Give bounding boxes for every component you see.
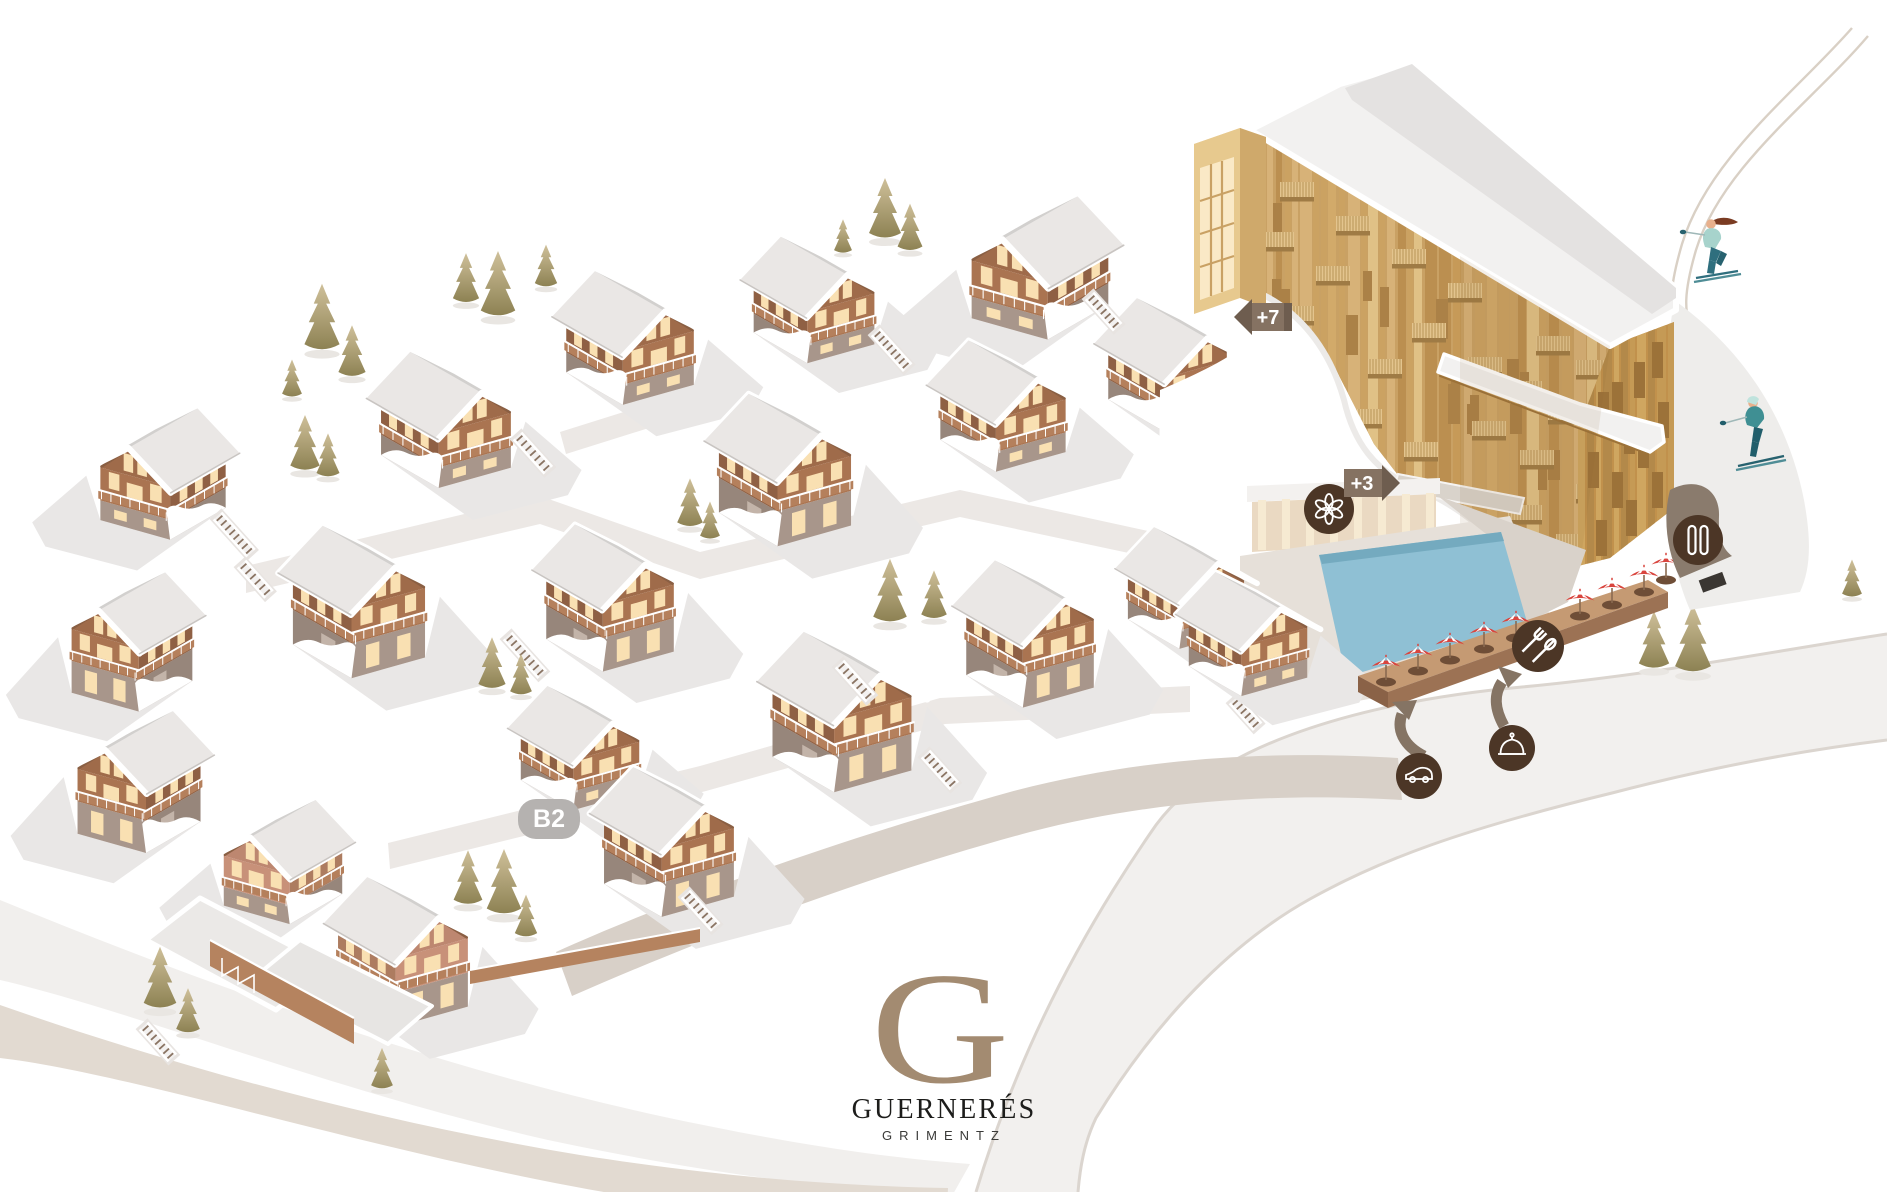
- svg-text:G: G: [871, 941, 1010, 1118]
- svg-text:B2: B2: [533, 805, 565, 833]
- svg-text:GUERNERÉS: GUERNERÉS: [852, 1094, 1037, 1125]
- svg-text:+3: +3: [1351, 473, 1374, 495]
- svg-text:+7: +7: [1257, 307, 1280, 329]
- svg-text:GRIMENTZ: GRIMENTZ: [882, 1128, 1006, 1143]
